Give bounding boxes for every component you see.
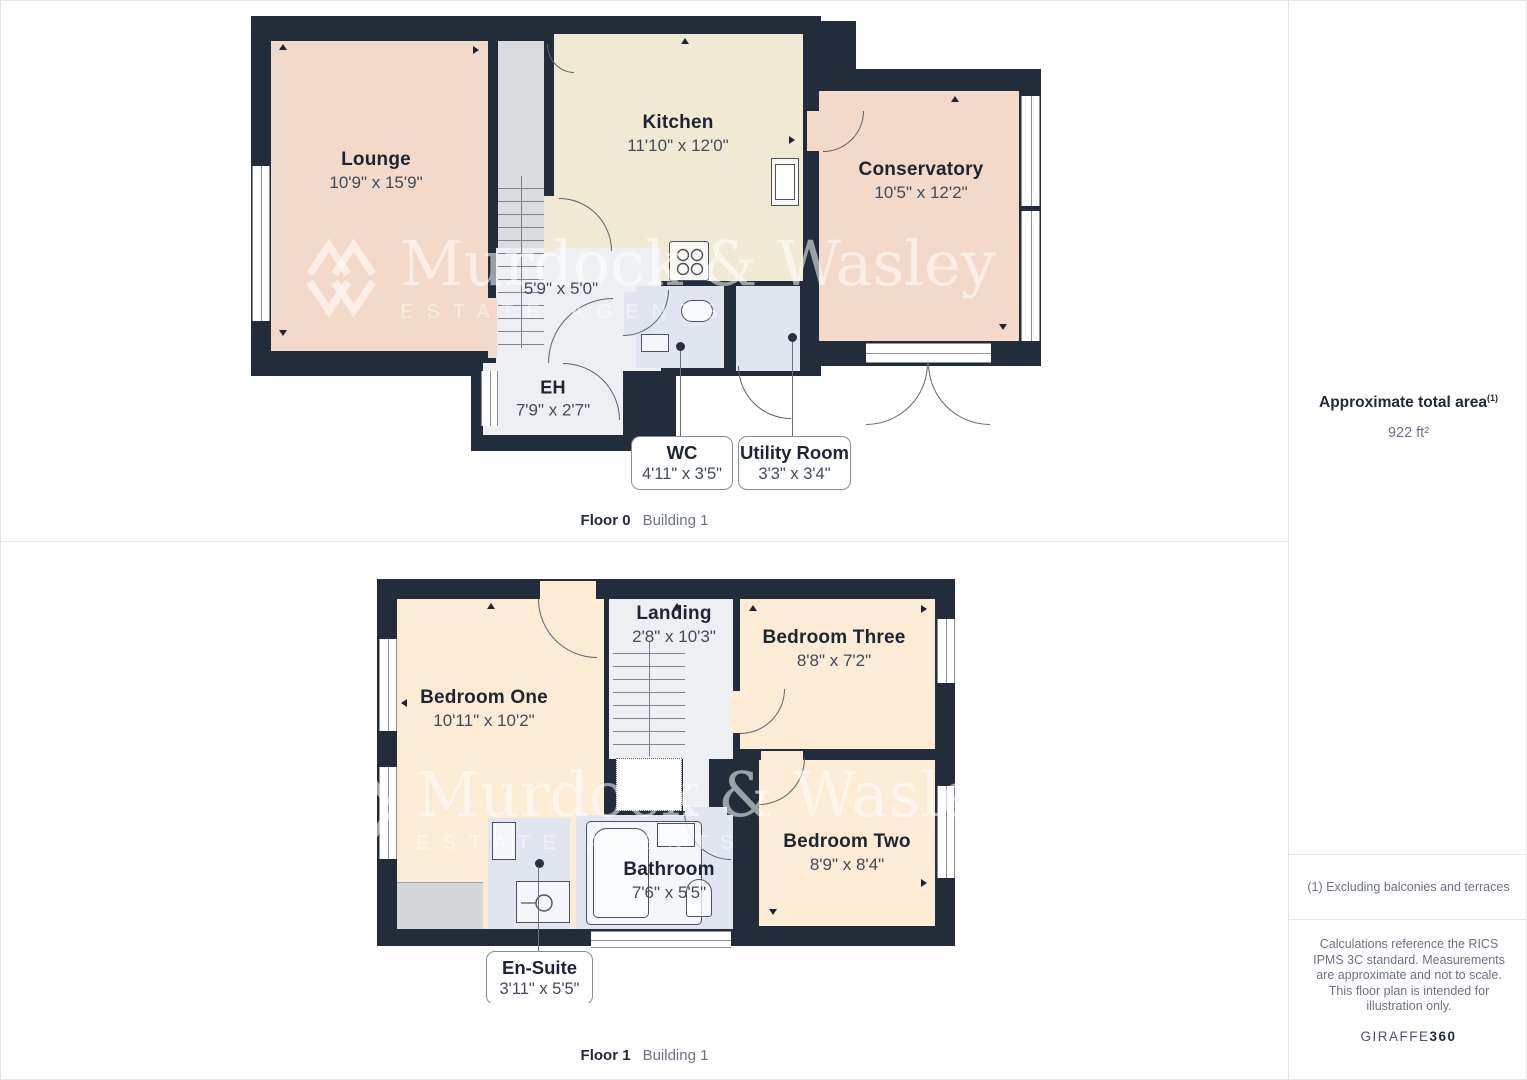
room-utility [736,286,800,371]
kitchen-door-gap [544,196,556,254]
conservatory-label: Conservatory 10'5" x 12'2" [859,159,984,203]
conservatory-dims: 10'5" x 12'2" [859,183,984,203]
hall-dims: 5'9" x 5'0" [524,279,598,299]
floor1-caption-floor: Floor 1 [581,1047,631,1064]
lounge-label: Lounge 10'9" x 15'9" [329,149,422,193]
arrow-bed2-bl [769,909,777,915]
bedroom-one-door-gap [540,581,596,599]
landing-label: Landing 2'8" x 10'3" [632,603,716,647]
bedroom-one-label: Bedroom One 10'11" x 10'2" [420,687,548,731]
ensuite-callout: En-Suite 3'11" x 5'5" [486,951,593,1003]
bedroom-three-dims: 8'8" x 7'2" [762,651,905,671]
floor0-plan: Murdock & Wasley ESTATE AGENTS Lounge 10… [251,16,1046,491]
conservatory-french-opening [866,343,991,363]
floor0-caption-building: Building 1 [643,512,709,529]
bedroom-two-label: Bedroom Two 8'9" x 8'4" [783,831,910,875]
lounge-window [252,166,270,321]
arrow-bed1-top [487,603,495,609]
arrow-conservatory-top [951,96,959,102]
arrow-lounge-bl [279,330,287,336]
eh-dims: 7'9" x 2'7" [516,401,590,421]
room-bedroom-three [740,599,935,749]
room-lounge [271,41,488,351]
giraffe360-logo-text: GIRAFFE [1360,1029,1429,1044]
bedroom-one-window-lower [379,767,397,859]
bedroom-two-dims: 8'9" x 8'4" [783,855,910,875]
conservatory-name: Conservatory [859,159,984,181]
total-area-value: 922 ft² [1289,425,1527,441]
arrow-lounge-tr [473,46,479,54]
area-footnote: (1) Excluding balconies and terraces [1289,854,1527,919]
kitchen-dims: 11'10" x 12'0" [627,136,728,156]
kitchen-sink-basin [775,164,795,200]
utility-leader-dot [788,333,797,342]
landing-name: Landing [632,603,716,625]
utility-name: Utility Room [740,442,849,464]
total-area-title-text: Approximate total area [1319,394,1487,411]
arrow-conservatory-bottom [999,324,1007,330]
hob-icon [669,241,709,281]
wc-dims: 4'11" x 3'5" [642,465,722,484]
bedroom-three-name: Bedroom Three [762,627,905,649]
ensuite-leader-line [538,867,539,951]
wc-sink-icon [641,334,669,352]
landing-corridor [683,759,709,811]
wc-toilet-icon [681,300,713,322]
arrow-bed3-tl [749,605,757,611]
lounge-dims: 10'9" x 15'9" [329,173,422,193]
bathroom-label: Bathroom 7'6" x 5'5" [623,859,714,903]
utility-dims: 3'3" x 3'4" [758,465,830,484]
arrow-kitchen-top [681,38,689,44]
bedroom-one-dims: 10'11" x 10'2" [420,711,548,731]
conservatory-door-gap [807,111,819,151]
arrow-lounge-tl [279,44,287,50]
hall-label: 5'9" x 5'0" [524,277,598,299]
arrow-kitchen-right [789,136,795,144]
bathroom-name: Bathroom [623,859,714,881]
eh-label: EH 7'9" x 2'7" [516,378,590,421]
kitchen-label: Kitchen 11'10" x 12'0" [627,112,728,156]
total-area-title: Approximate total area(1) [1289,393,1527,412]
bedroom-two-window [937,786,955,878]
floor0-caption-floor: Floor 0 [581,512,631,529]
floor1-caption: Floor 1Building 1 [1,1047,1288,1064]
lounge-name: Lounge [329,149,422,171]
bedroom-three-window [937,619,955,683]
hob-burners [670,242,710,282]
floorplan-page: Murdock & Wasley ESTATE AGENTS Lounge 10… [0,0,1527,1080]
bedroom-three-label: Bedroom Three 8'8" x 7'2" [762,627,905,671]
bedroom-two-name: Bedroom Two [783,831,910,853]
eh-window [481,371,498,426]
conservatory-window-lower [1021,211,1040,341]
landing-dims: 2'8" x 10'3" [632,627,716,647]
giraffe360-logo-suffix: 360 [1429,1029,1456,1044]
bathroom-sink-icon [657,823,695,847]
ensuite-sink-icon [492,822,516,860]
total-area-sup: (1) [1487,393,1498,403]
shower-drain [517,882,571,924]
info-sidebar: Approximate total area(1) 922 ft² (1) Ex… [1288,1,1527,1080]
bedroom-one-window-upper [379,639,397,731]
floor1-caption-building: Building 1 [643,1047,709,1064]
conservatory-window-upper [1021,96,1040,206]
lounge-door-gap [488,298,497,358]
stairs-floor1 [613,641,685,756]
utility-leader-line [792,342,793,436]
wc-name: WC [667,442,698,464]
sidebar-divider-2 [1289,919,1527,920]
cupboard [616,758,682,811]
panel-divider [1,541,1288,542]
arrow-bed2-r [921,879,927,887]
shower-icon [516,881,570,923]
ensuite-name: En-Suite [502,957,577,979]
arrow-bed1-left [401,699,407,707]
wc-callout: WC 4'11" x 3'5" [631,436,733,490]
eh-name: EH [516,378,590,399]
ensuite-dims: 3'11" x 5'5" [499,980,579,999]
utility-callout: Utility Room 3'3" x 3'4" [738,436,851,490]
bathroom-dims: 7'6" x 5'5" [623,883,714,903]
disclaimer-text: Calculations reference the RICS IPMS 3C … [1309,937,1509,1015]
bedroom-one-name: Bedroom One [420,687,548,709]
giraffe360-logo: GIRAFFE360 [1289,1029,1527,1044]
floor0-caption: Floor 0Building 1 [1,512,1288,529]
bedroom-one-wardrobe [397,882,483,929]
french-door-right [928,363,990,425]
french-door-left [866,363,928,425]
kitchen-name: Kitchen [627,112,728,134]
floor0-corner-wall [821,21,856,81]
arrow-bed3-tr [921,605,927,613]
ensuite-leader-dot [535,859,544,868]
wc-leader-dot [676,342,685,351]
stairs-floor0 [498,176,544,348]
bathroom-window [591,931,731,948]
utility-back-door [738,366,791,419]
wc-leader-line [680,351,681,436]
floor1-plan: Murdock & Wasley ESTATE AGENTS Bedroom O… [377,579,955,1003]
